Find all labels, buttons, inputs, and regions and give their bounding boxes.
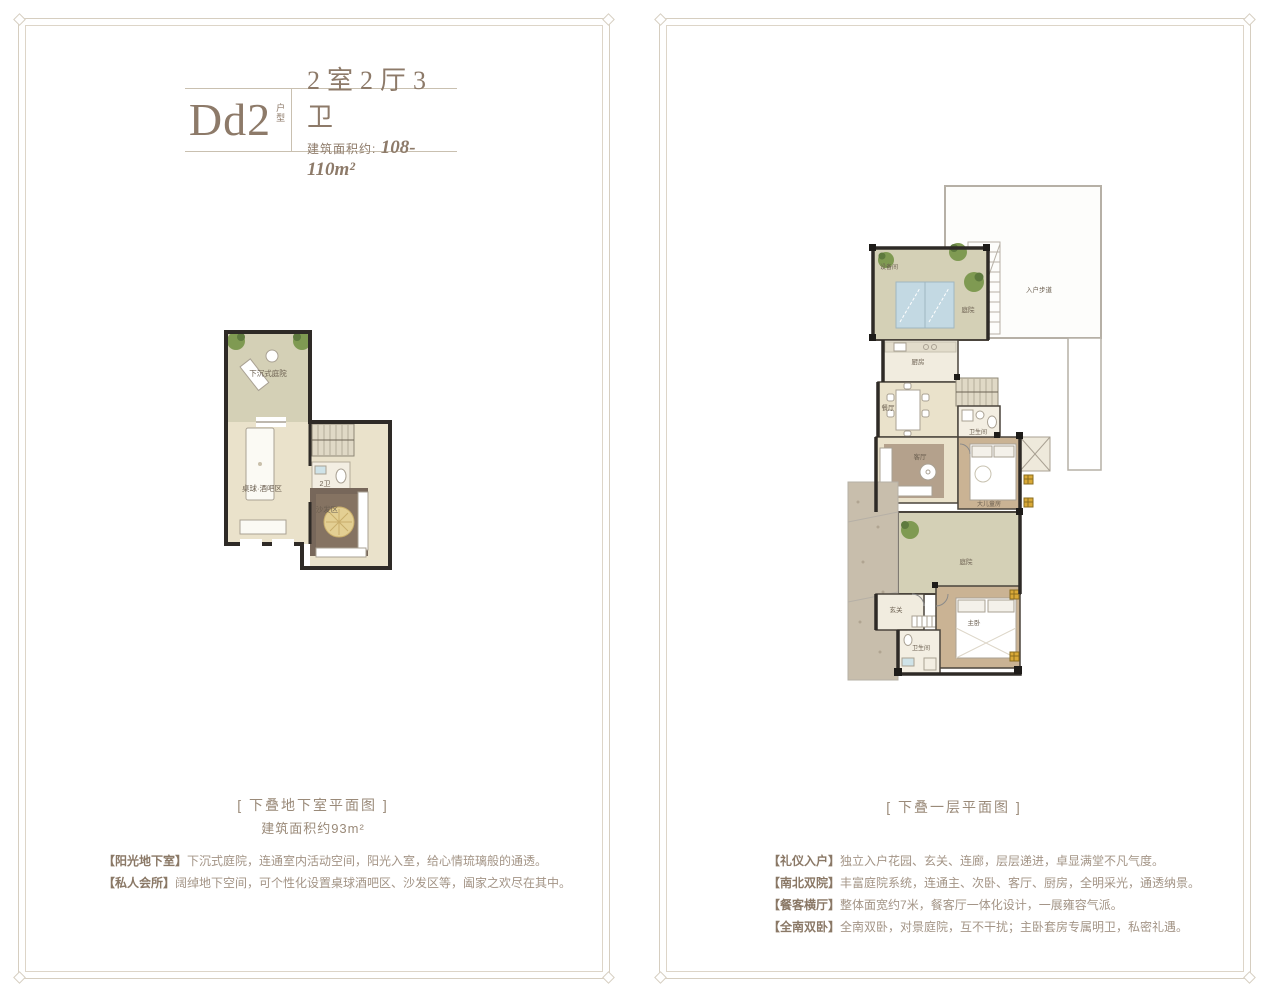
room-label: 沙发区: [316, 504, 339, 514]
frame-corner-ornament: [13, 13, 26, 26]
wardrobe-marker: [1024, 475, 1033, 507]
frame-corner-ornament: [13, 971, 26, 984]
room-label: 餐厅: [882, 403, 896, 412]
basement-floorplan: 下沉式庭院 桌球·酒吧区 2卫 沙发区: [220, 326, 405, 576]
bath2-room: 卫生间: [898, 630, 940, 674]
room-label: 下沉式庭院: [249, 368, 287, 378]
door-opening: [240, 539, 262, 549]
room-label: 厨房: [912, 357, 925, 366]
description-tag: 【阳光地下室】: [103, 854, 187, 868]
description-text: 下沉式庭院，连通室内活动空间，阳光入室，给心情琉璃般的通透。: [187, 854, 547, 868]
description-text: 丰富庭院系统，连通主、次卧、客厅、厨房，全明采光，通透纳景。: [840, 876, 1200, 890]
description-text: 整体面宽约7米，餐客厅一体化设计，一展雍容气派。: [840, 898, 1123, 912]
north-courtyard: 设备间 庭院: [873, 243, 988, 340]
frame-corner-ornament: [1243, 13, 1256, 26]
room-label: 卫生间: [969, 428, 987, 436]
description-tag: 【私人会所】: [103, 876, 175, 890]
mid-stairs: [956, 378, 998, 406]
door-opening: [272, 539, 294, 549]
unit-code: Dd2: [189, 97, 271, 143]
unit-code-tag: 户型: [274, 103, 287, 123]
room-label: 客厅: [914, 452, 928, 461]
room-label: 桌球·酒吧区: [242, 483, 282, 493]
frame-corner-ornament: [602, 13, 615, 26]
bar-counter: [240, 520, 286, 534]
description-tag: 【餐客横厅】: [768, 898, 840, 912]
bath1-room: 卫生间: [958, 406, 1000, 440]
unit-title-block: Dd2 户型 2室2厅3卫 建筑面积约: 108-110m²: [185, 88, 457, 152]
description-text: 阔绰地下空间，可个性化设置桌球酒吧区、沙发区等，阖家之欢尽在其中。: [175, 876, 571, 890]
frame-corner-ornament: [654, 13, 667, 26]
unit-area-line: 建筑面积约: 108-110m²: [307, 137, 457, 181]
basement-stairs: [312, 424, 354, 456]
unit-area-label: 建筑面积约:: [307, 142, 376, 156]
unit-info-cell: 2室2厅3卫 建筑面积约: 108-110m²: [292, 89, 457, 151]
first-floor-floorplan: 入户步道 设备间 庭院 厨房: [808, 182, 1108, 687]
room-label: 卫生间: [912, 644, 930, 652]
sofa-zone: [310, 488, 368, 557]
basement-plan-caption: [ 下叠地下室平面图 ]: [18, 795, 608, 815]
description-text: 独立入户花园、玄关、连廊，层层递进，卓显满堂不凡气度。: [840, 854, 1164, 868]
side-walkway: [848, 482, 898, 680]
room-label: 庭院: [962, 305, 976, 314]
frame-corner-ornament: [602, 971, 615, 984]
room-label: 大儿童房: [977, 500, 1001, 508]
basement-descriptions: 【阳光地下室】下沉式庭院，连通室内活动空间，阳光入室，给心情琉璃般的通透。 【私…: [103, 850, 571, 894]
frame-corner-ornament: [1243, 971, 1256, 984]
billiard-ball: [258, 462, 262, 466]
unit-code-cell: Dd2 户型: [185, 89, 292, 151]
room-label: 2卫: [320, 480, 331, 488]
description-text: 全南双卧，对景庭院，互不干扰；主卧套房专属明卫，私密礼遇。: [840, 920, 1188, 934]
room-label: 入户步道: [1026, 285, 1053, 294]
description-tag: 【南北双院】: [768, 876, 840, 890]
room-label: 设备间: [880, 263, 898, 271]
kitchen-room: 厨房: [883, 340, 958, 382]
room-label: 玄关: [890, 605, 904, 614]
description-line: 【礼仪入户】独立入户花园、玄关、连廊，层层递进，卓显满堂不凡气度。: [768, 850, 1200, 872]
unit-rooms-label: 2室2厅3卫: [307, 60, 457, 134]
description-line: 【餐客横厅】整体面宽约7米，餐客厅一体化设计，一展雍容气派。: [768, 894, 1200, 916]
description-tag: 【礼仪入户】: [768, 854, 840, 868]
south-courtyard: 庭院: [898, 512, 1020, 594]
hatch-area: [1020, 437, 1050, 471]
frame-corner-ornament: [654, 971, 667, 984]
first-floor-plan-caption: [ 下叠一层平面图 ]: [659, 797, 1249, 817]
floorplan-brochure-page: Dd2 户型 2室2厅3卫 建筑面积约: 108-110m²: [0, 0, 1269, 999]
description-line: 【全南双卧】全南双卧，对景庭院，互不干扰；主卧套房专属明卫，私密礼遇。: [768, 916, 1200, 938]
basement-area-caption: 建筑面积约93m²: [18, 818, 608, 837]
description-line: 【阳光地下室】下沉式庭院，连通室内活动空间，阳光入室，给心情琉璃般的通透。: [103, 850, 571, 872]
description-tag: 【全南双卧】: [768, 920, 840, 934]
patio-table: [266, 350, 278, 362]
description-line: 【南北双院】丰富庭院系统，连通主、次卧、客厅、厨房，全明采光，通透纳景。: [768, 872, 1200, 894]
room-label: 主卧: [968, 618, 982, 627]
dining-room: 餐厅: [878, 382, 958, 437]
first-floor-descriptions: 【礼仪入户】独立入户花园、玄关、连廊，层层递进，卓显满堂不凡气度。 【南北双院】…: [768, 850, 1200, 938]
description-line: 【私人会所】阔绰地下空间，可个性化设置桌球酒吧区、沙发区等，阖家之欢尽在其中。: [103, 872, 571, 894]
room-label: 庭院: [960, 557, 974, 566]
master-bedroom: 主卧: [936, 586, 1020, 668]
